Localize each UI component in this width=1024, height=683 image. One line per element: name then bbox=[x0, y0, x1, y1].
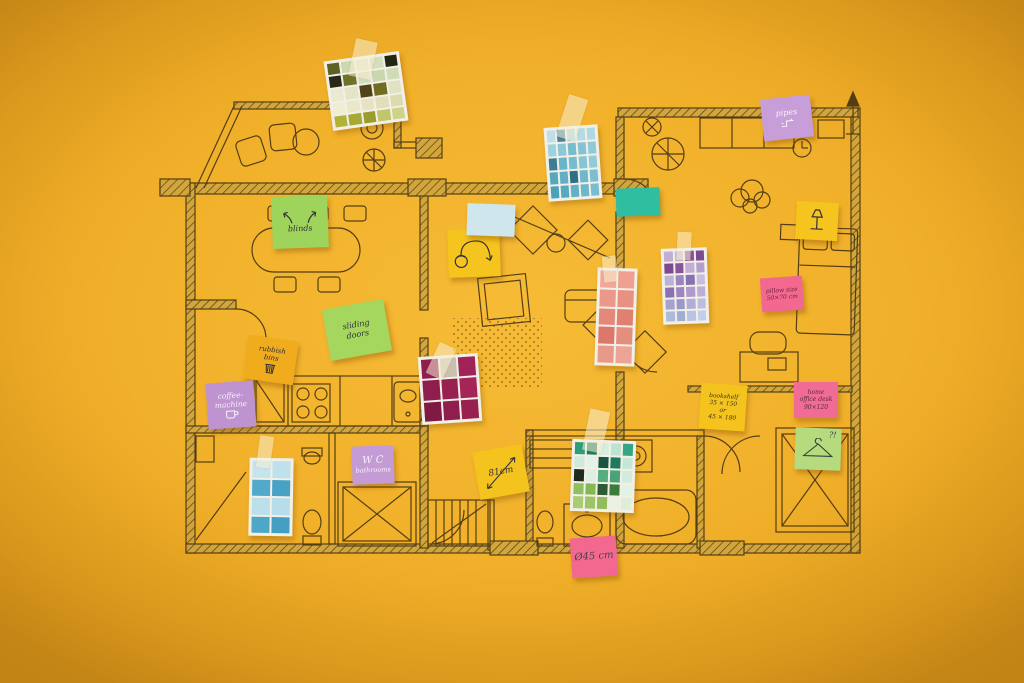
swatch-cell bbox=[271, 517, 289, 534]
note-text-line: 50×70 cm bbox=[766, 293, 798, 302]
swatch-cell bbox=[329, 76, 343, 89]
sticky-note-blank-teal bbox=[616, 187, 661, 217]
swatch-cell bbox=[574, 456, 584, 468]
sticky-note-pillow-size: pillow size50×70 cm bbox=[760, 276, 804, 313]
sticky-note-table-lamp bbox=[795, 201, 839, 241]
note-text: Ø45 cm bbox=[574, 550, 614, 565]
swatch-cell bbox=[458, 356, 476, 376]
swatch-cell bbox=[609, 498, 619, 510]
clothes-hanger-icon bbox=[801, 437, 836, 460]
swatch-cell bbox=[347, 100, 361, 113]
swatch-cell bbox=[599, 289, 616, 306]
note-text-line: home bbox=[800, 389, 833, 396]
swatch-cell bbox=[586, 456, 596, 468]
swatch-cell bbox=[665, 299, 674, 309]
swatch-cell bbox=[334, 115, 348, 128]
sticky-note-bookshelf: bookshelf35 × 150or45 × 180 bbox=[698, 382, 747, 431]
swatch-cell bbox=[597, 484, 607, 496]
stairs bbox=[428, 500, 490, 546]
pipe-doodle-icon bbox=[779, 117, 796, 129]
swatch-cell bbox=[615, 346, 632, 363]
swatch-cell bbox=[697, 298, 706, 308]
desk bbox=[740, 332, 798, 382]
swatch-cell bbox=[441, 379, 459, 399]
swatch-cell bbox=[573, 483, 583, 495]
swatch-cell bbox=[686, 299, 695, 309]
swatch-cell bbox=[696, 274, 705, 284]
swatch-cell bbox=[391, 107, 405, 120]
swatch-card-blue-small bbox=[248, 458, 293, 537]
swatch-cell bbox=[558, 143, 567, 156]
swatch-card-salmon bbox=[594, 267, 637, 366]
swatch-cell bbox=[551, 186, 560, 199]
floor-plan-drawing bbox=[0, 0, 1024, 683]
swatch-cell bbox=[686, 275, 695, 285]
swatch-cell bbox=[424, 401, 442, 421]
swatch-cell bbox=[597, 497, 607, 509]
swatch-cell bbox=[550, 172, 559, 185]
bin-icon bbox=[262, 361, 278, 375]
tape-strip bbox=[602, 255, 619, 282]
swatch-cell bbox=[665, 287, 674, 297]
swatch-cell bbox=[696, 262, 705, 272]
swatch-cell bbox=[666, 311, 675, 321]
swatch-cell bbox=[549, 158, 558, 171]
note-text: slidingdoors bbox=[342, 318, 372, 342]
swatch-cell bbox=[617, 309, 634, 326]
toilet bbox=[537, 511, 553, 533]
table-lamp-icon bbox=[803, 206, 830, 235]
entry-hall bbox=[643, 118, 844, 170]
swatch-cell bbox=[384, 54, 398, 67]
swatch-cell bbox=[588, 141, 597, 154]
swatch-cell bbox=[461, 399, 479, 419]
swatch-cell bbox=[676, 299, 685, 309]
sticky-note-home-office-desk: homeoffice desk90×120 bbox=[794, 382, 838, 418]
coffee-cup-icon bbox=[224, 409, 239, 420]
note-text: rubbishbins bbox=[257, 344, 286, 364]
swatch-cell bbox=[442, 400, 460, 420]
swatch-cell bbox=[571, 185, 580, 198]
sticky-note-sliding-doors: slidingdoors bbox=[322, 299, 392, 361]
swatch-cell bbox=[610, 470, 620, 482]
swatch-cell bbox=[609, 484, 619, 496]
swatch-cell bbox=[590, 183, 599, 196]
swatch-cell bbox=[664, 251, 673, 261]
swatch-cell bbox=[375, 96, 389, 109]
swatch-cell bbox=[570, 171, 579, 184]
swatch-cell bbox=[386, 68, 400, 81]
swatch-cell bbox=[687, 311, 696, 321]
swatch-cell bbox=[585, 497, 595, 509]
note-text-line: office desk bbox=[800, 396, 833, 403]
swatch-cell bbox=[568, 143, 577, 156]
arc-floor-lamp-icon bbox=[451, 234, 496, 272]
note-text-line: Ø45 cm bbox=[574, 550, 614, 565]
swatch-cell bbox=[616, 327, 633, 344]
swatch-cell bbox=[578, 142, 587, 155]
swatch-cell bbox=[371, 70, 385, 83]
swatch-card-green bbox=[570, 439, 636, 513]
swatch-cell bbox=[676, 287, 685, 297]
swatch-cell bbox=[272, 480, 290, 497]
swatch-cell bbox=[332, 102, 346, 115]
swatch-cell bbox=[676, 311, 685, 321]
swatch-cell bbox=[589, 155, 598, 168]
swatch-cell bbox=[569, 157, 578, 170]
swatch-cell bbox=[685, 263, 694, 273]
swatch-cell bbox=[621, 484, 631, 496]
sticky-note-diameter-45cm: Ø45 cm bbox=[570, 535, 619, 578]
swatch-cell bbox=[697, 310, 706, 320]
swatch-cell bbox=[665, 275, 674, 285]
swatch-cell bbox=[345, 87, 359, 100]
note-text: ?! bbox=[829, 430, 837, 440]
swatch-cell bbox=[664, 263, 673, 273]
swatch-cell bbox=[363, 111, 377, 124]
swatch-cell bbox=[548, 144, 557, 157]
sticky-note-hanger: ?! bbox=[794, 427, 841, 471]
note-text: coffee-machine bbox=[214, 390, 247, 410]
sticky-note-rubbish-bins: rubbishbins bbox=[243, 335, 299, 386]
swatch-cell bbox=[598, 470, 608, 482]
swatch-cell bbox=[389, 94, 403, 107]
sticky-note-blinds: blinds bbox=[271, 195, 329, 249]
swatch-cell bbox=[675, 275, 684, 285]
sticky-note-81cm: 81cm bbox=[472, 444, 530, 500]
note-text-line: blinds bbox=[288, 224, 313, 234]
swatch-cell bbox=[610, 457, 620, 469]
swatch-cell bbox=[377, 109, 391, 122]
floor-plan-photo: blinds slidingdoors rubbishbins coffee-m… bbox=[0, 0, 1024, 683]
swatch-cell bbox=[590, 169, 599, 182]
swatch-cell bbox=[580, 170, 589, 183]
swatch-cell bbox=[618, 271, 635, 288]
note-text-line: bathrooms bbox=[355, 466, 391, 475]
swatch-cell bbox=[598, 327, 615, 344]
swatch-cell bbox=[348, 113, 362, 126]
note-text: W Cbathrooms bbox=[355, 454, 391, 475]
toilet bbox=[303, 510, 321, 534]
swatch-cell bbox=[373, 83, 387, 96]
swatch-cell bbox=[272, 498, 290, 515]
note-text-line: ?! bbox=[829, 430, 837, 440]
swatch-cell bbox=[560, 171, 569, 184]
swatch-cell bbox=[331, 89, 345, 102]
swatch-cell bbox=[621, 498, 631, 510]
swatch-cell bbox=[598, 456, 608, 468]
sticky-note-wc-bathrooms: W Cbathrooms bbox=[351, 445, 394, 484]
swatch-cell bbox=[252, 498, 270, 515]
sticky-note-pipes: pipes bbox=[760, 95, 814, 142]
swatch-cell bbox=[597, 346, 614, 363]
note-text-line: 45 × 180 bbox=[707, 413, 737, 422]
swatch-cell bbox=[272, 461, 290, 478]
swatch-cell bbox=[622, 457, 632, 469]
swatch-cell bbox=[622, 471, 632, 483]
diagonal-double-arrow-icon bbox=[476, 448, 526, 495]
swatch-cell bbox=[587, 127, 596, 140]
swatch-cell bbox=[574, 469, 584, 481]
tape-strip bbox=[676, 232, 691, 261]
swatch-cell bbox=[460, 377, 478, 397]
swatch-cell bbox=[252, 479, 270, 496]
swatch-cell bbox=[581, 184, 590, 197]
swatch-cell bbox=[547, 130, 556, 143]
swatch-cell bbox=[686, 287, 695, 297]
swatch-cell bbox=[599, 308, 616, 325]
swatch-cell bbox=[359, 85, 373, 98]
swatch-cell bbox=[561, 185, 570, 198]
swatch-cell bbox=[327, 62, 341, 75]
swatch-cell bbox=[617, 290, 634, 307]
note-text: pillow size50×70 cm bbox=[766, 286, 799, 303]
swatch-cell bbox=[251, 516, 269, 533]
note-text: bookshelf35 × 150or45 × 180 bbox=[707, 392, 738, 423]
note-text-line: 90×120 bbox=[800, 404, 833, 411]
swatch-cell bbox=[573, 496, 583, 508]
swatch-card-maroon bbox=[418, 353, 483, 425]
swatch-cell bbox=[675, 263, 684, 273]
swatch-cell bbox=[579, 156, 588, 169]
desk-chair bbox=[750, 332, 786, 354]
swatch-cell bbox=[361, 98, 375, 111]
basin bbox=[304, 452, 320, 464]
swatch-cell bbox=[585, 483, 595, 495]
swatch-cell bbox=[697, 286, 706, 296]
swatch-cell bbox=[388, 81, 402, 94]
sticky-note-coffee-machine: coffee-machine bbox=[205, 380, 256, 429]
plant-doodle bbox=[731, 180, 770, 213]
note-text: blinds bbox=[288, 224, 313, 234]
swatch-cell bbox=[611, 443, 621, 455]
swatch-cell bbox=[422, 380, 440, 400]
sticky-note-blank-blue bbox=[466, 203, 515, 237]
swatch-cell bbox=[586, 470, 596, 482]
swatch-cell bbox=[695, 250, 704, 260]
swatch-cell bbox=[559, 157, 568, 170]
swatch-cell bbox=[623, 444, 633, 456]
note-text: homeoffice desk90×120 bbox=[800, 389, 833, 411]
curved-up-arrows-icon bbox=[280, 210, 320, 225]
